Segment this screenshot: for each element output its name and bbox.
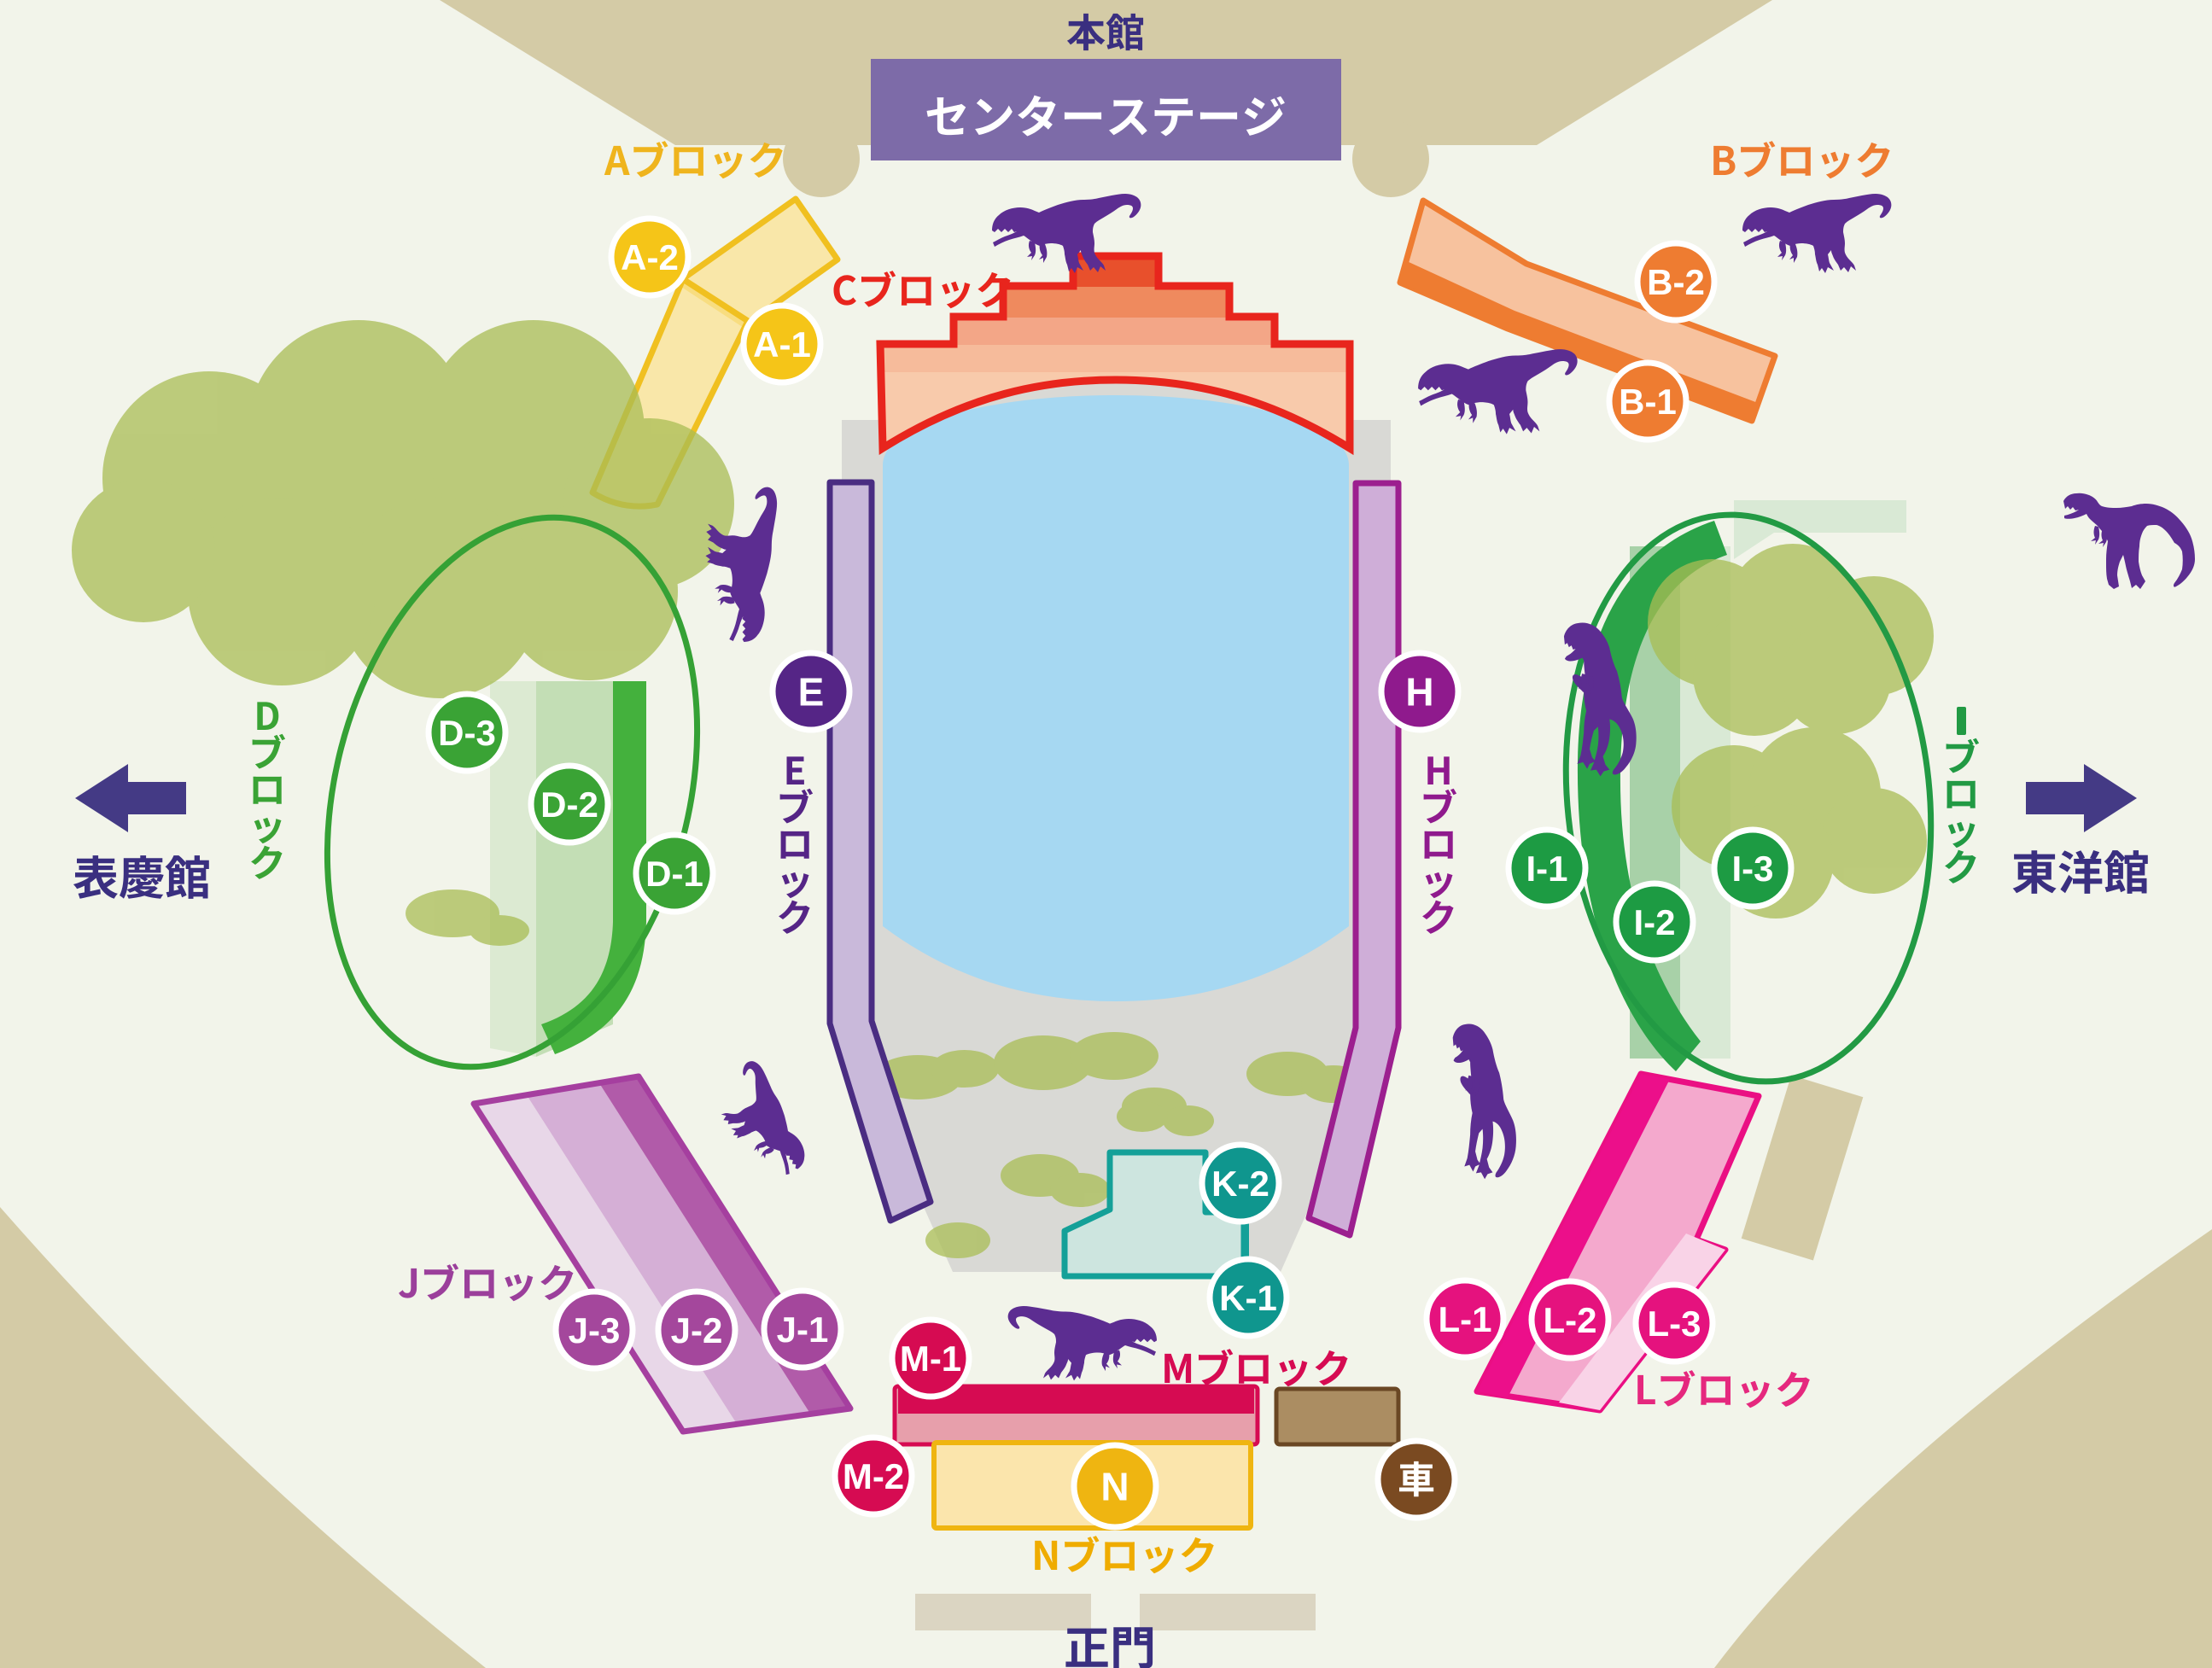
svg-text:D-2: D-2: [540, 784, 598, 825]
svg-text:E: E: [798, 669, 825, 714]
svg-text:D-1: D-1: [645, 854, 703, 894]
svg-text:I-3: I-3: [1731, 849, 1773, 889]
svg-text:L-3: L-3: [1648, 1303, 1701, 1344]
svg-text:B-1: B-1: [1619, 382, 1677, 422]
svg-text:L-2: L-2: [1544, 1300, 1597, 1340]
svg-text:M-2: M-2: [843, 1456, 904, 1496]
svg-text:L-1: L-1: [1439, 1299, 1492, 1339]
svg-text:A-2: A-2: [621, 237, 679, 277]
svg-text:J-1: J-1: [777, 1309, 829, 1350]
svg-text:B-2: B-2: [1647, 262, 1705, 302]
svg-text:H: H: [1405, 669, 1433, 714]
svg-text:A-1: A-1: [753, 324, 811, 365]
svg-text:N: N: [1100, 1464, 1129, 1508]
svg-text:I-1: I-1: [1526, 849, 1567, 889]
svg-text:K-2: K-2: [1211, 1164, 1269, 1204]
svg-text:J-3: J-3: [569, 1310, 621, 1350]
svg-text:D-3: D-3: [438, 713, 496, 753]
svg-text:I-2: I-2: [1633, 902, 1675, 942]
svg-text:J-2: J-2: [671, 1310, 723, 1350]
svg-text:M-1: M-1: [900, 1338, 961, 1379]
svg-text:K-1: K-1: [1219, 1278, 1277, 1318]
